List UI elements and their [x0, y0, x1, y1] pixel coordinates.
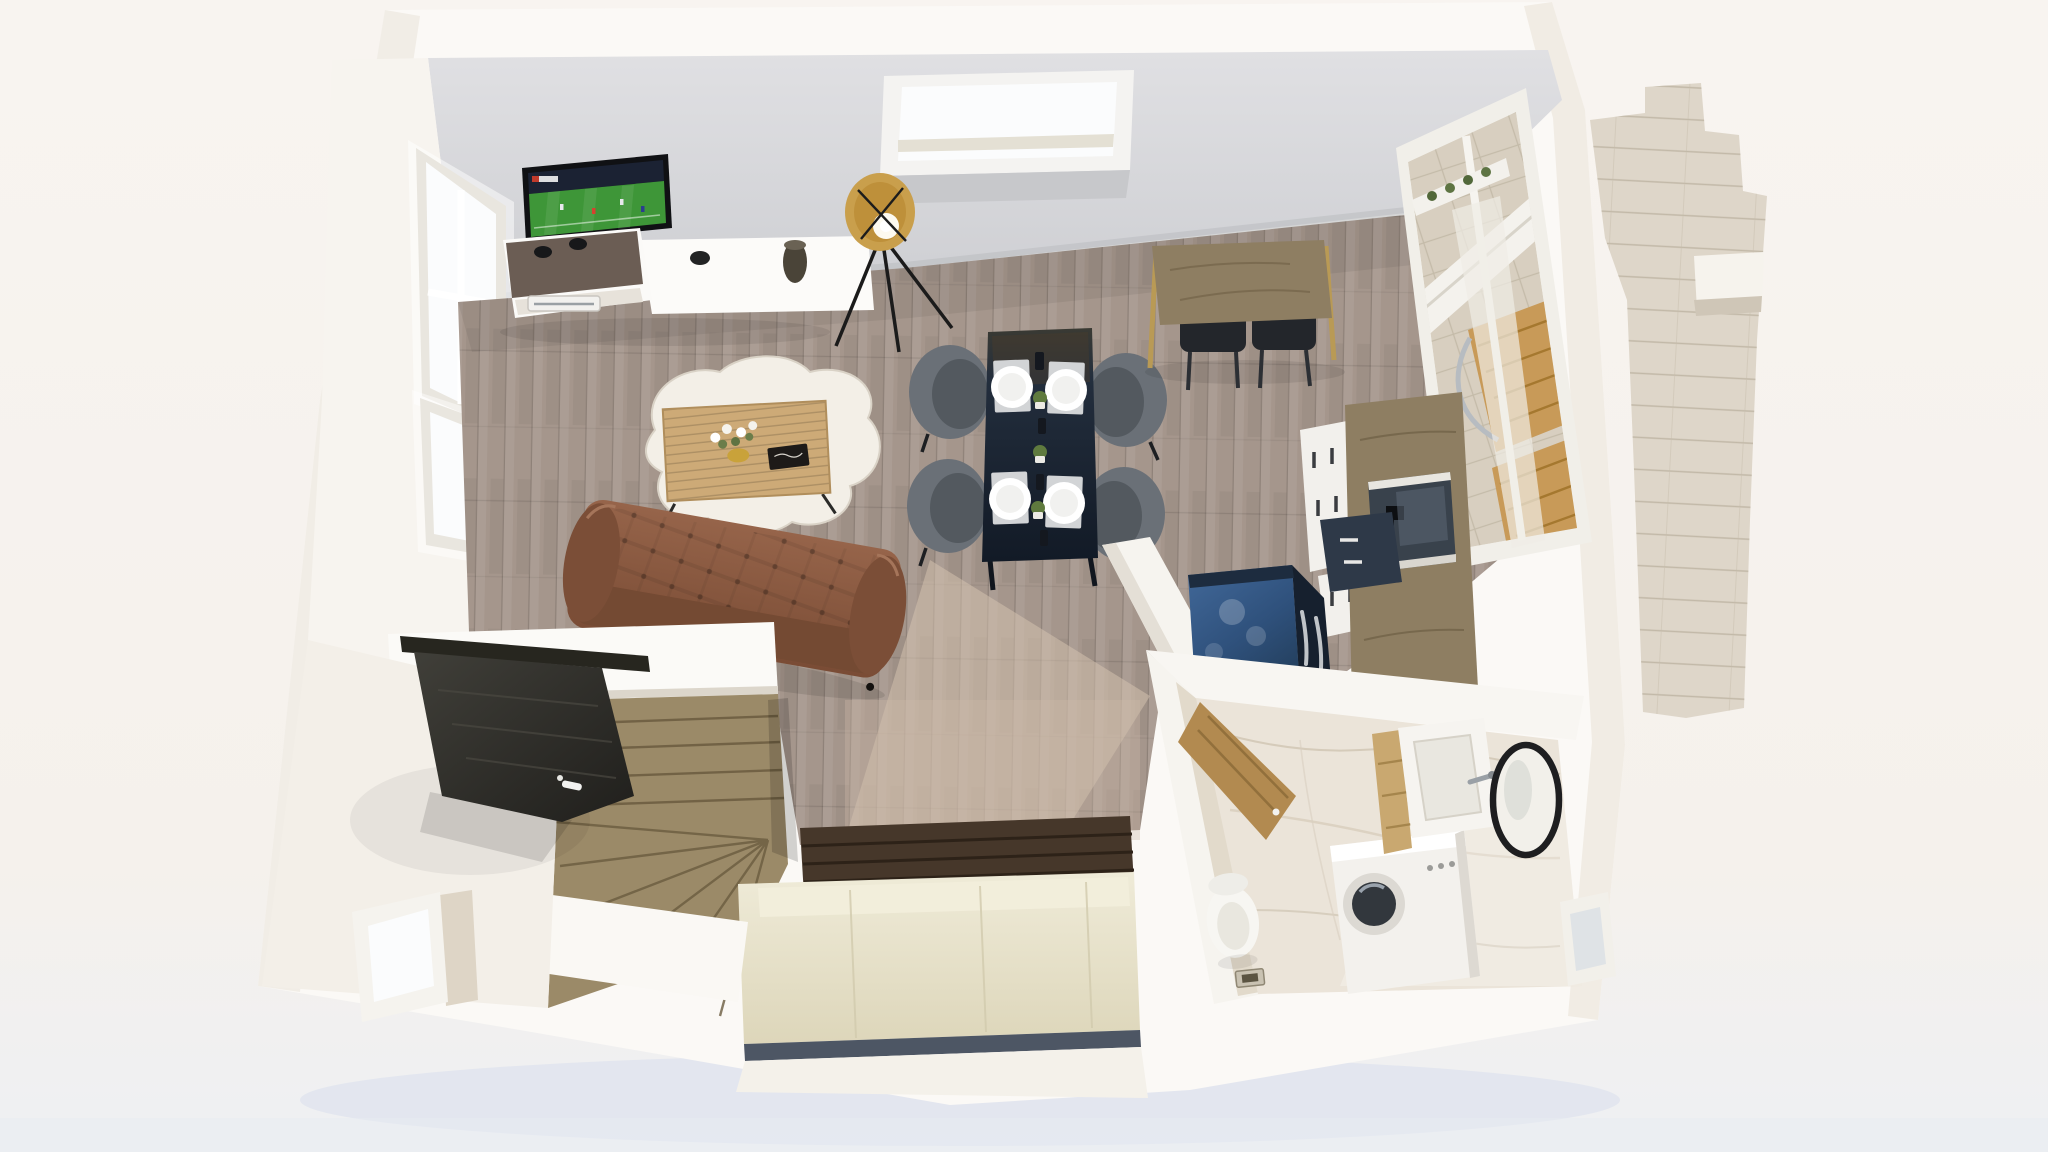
bathroom-window — [1560, 892, 1616, 986]
tv-player — [592, 208, 596, 214]
place-setting — [1045, 361, 1087, 414]
place-setting — [1043, 475, 1085, 528]
chair-seat — [930, 473, 986, 543]
stool-leg — [1260, 350, 1262, 388]
entry-window — [352, 890, 478, 1022]
table-leg — [990, 560, 993, 590]
vase-mouth — [784, 240, 806, 250]
candle — [1038, 418, 1046, 434]
mini-plant — [1033, 391, 1047, 409]
washing-machine — [1330, 830, 1480, 994]
place-setting — [989, 471, 1031, 524]
tv-player — [560, 204, 564, 210]
tv-sideboard — [500, 228, 874, 346]
door-handle-rose — [557, 775, 563, 781]
oven-glass-sheen — [1396, 486, 1448, 546]
dark-cabinet-front — [1320, 512, 1402, 592]
drain-grate — [1242, 973, 1259, 983]
washer-door-glass — [1352, 882, 1396, 926]
chair-seat — [1088, 367, 1144, 437]
place-setting — [991, 359, 1033, 412]
skylight — [874, 70, 1134, 204]
bar-table-set — [1145, 240, 1345, 390]
fridge-reflection — [1219, 599, 1245, 625]
game-controller — [569, 238, 587, 250]
chair-seat — [932, 359, 988, 429]
lamp-bulb-glow — [880, 220, 892, 232]
mini-plant — [1031, 501, 1045, 519]
window-glass — [1570, 907, 1606, 971]
tv-scorebar-badge — [532, 176, 539, 182]
remote-control — [690, 251, 710, 265]
tv-player — [641, 206, 645, 212]
floorplan-render — [0, 0, 2048, 1152]
plant — [1445, 183, 1455, 193]
plant — [1427, 191, 1437, 201]
fridge-reflection — [1246, 626, 1266, 646]
render-stage — [0, 0, 2048, 1152]
door-handle — [1273, 809, 1280, 816]
dark-counter-cabinet — [1320, 512, 1402, 592]
washer-knob — [1438, 863, 1444, 869]
plant — [1481, 167, 1491, 177]
plate-center — [998, 373, 1026, 401]
sink-basin — [1414, 735, 1481, 820]
bar-table-top — [1152, 240, 1332, 325]
stool-leg — [1188, 352, 1190, 390]
washer-knob — [1449, 861, 1455, 867]
mirror-reflection — [1504, 760, 1532, 820]
plant — [1463, 175, 1473, 185]
game-controller — [534, 246, 552, 258]
plate-center — [1050, 489, 1078, 517]
bathroom — [1146, 650, 1616, 1004]
plate-center — [1052, 376, 1080, 404]
vase — [783, 240, 807, 283]
sideboard-body-right — [640, 236, 874, 314]
tv — [522, 154, 672, 243]
bar-shadow — [1145, 360, 1345, 384]
floor-drain — [1235, 969, 1265, 988]
sideboard-shadow — [500, 318, 830, 346]
washer-knob — [1427, 865, 1433, 871]
candle — [1035, 352, 1044, 370]
tv-player — [620, 199, 624, 205]
bottom-reflection — [0, 1118, 2048, 1152]
candle — [1040, 530, 1048, 546]
plate-center — [996, 485, 1024, 513]
door-leaf — [414, 652, 634, 822]
stool-leg — [1236, 352, 1238, 388]
mini-plant — [1033, 445, 1047, 463]
candle — [1036, 474, 1044, 490]
front-door — [414, 652, 634, 822]
